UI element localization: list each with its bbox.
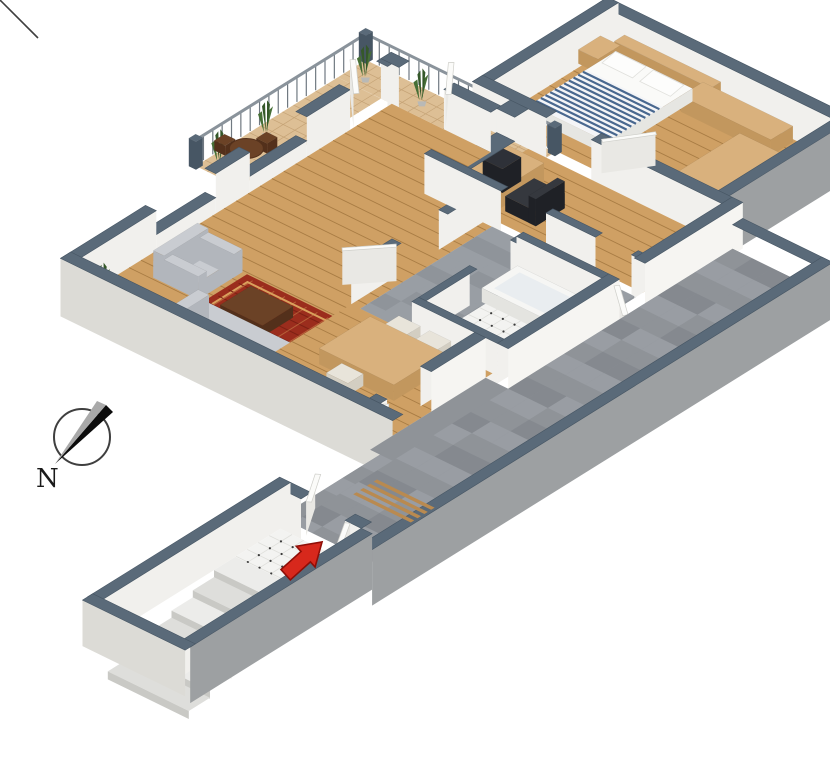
railing-post [196,138,203,170]
stair-landing-dot [292,546,294,548]
railing-post [189,138,196,170]
plant-pot [361,78,370,83]
plant-pot [417,101,426,106]
compass-needle [55,401,106,464]
floorplan-image: N [0,0,830,761]
desk-chair-back [529,196,536,227]
railing-post [548,125,555,157]
floor-bathroom-dot [513,324,515,326]
floorplan-scene [0,0,830,719]
floor-bathroom-dot [479,319,481,321]
floor-bathroom-dot [502,330,504,332]
stair-landing-dot [258,554,260,556]
living-nw-wall-face [388,64,392,107]
floorplan-page: N [0,0,830,761]
stair-landing-dot [280,540,282,542]
stair-landing-dot [269,560,271,562]
stair-landing-dot [281,553,283,555]
armchair-back [153,251,164,283]
compass-rose [54,401,113,465]
hall-door-face [342,247,396,285]
floor-bathroom-dot [490,312,492,314]
floor-bathroom-dot [502,318,504,320]
compass-line [0,0,38,38]
stair-landing-dot [269,547,271,549]
north-label: N [36,464,59,494]
floor-bathroom-dot [491,325,493,327]
railing-post [555,124,562,156]
